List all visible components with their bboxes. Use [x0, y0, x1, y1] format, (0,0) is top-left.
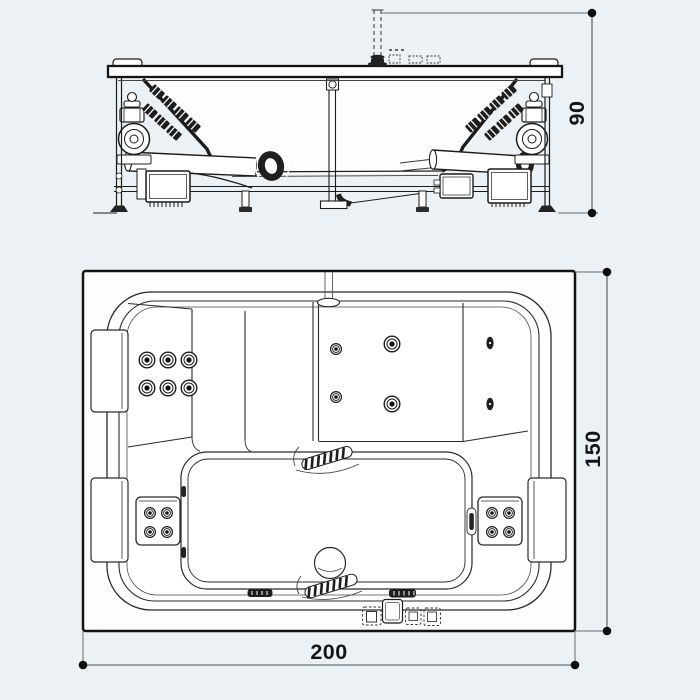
headrest-pad-right [528, 478, 566, 562]
bathtub-technical-drawing: 90 [0, 0, 700, 700]
dimension-dot [79, 661, 88, 670]
faucet-riser-dashed [368, 10, 387, 66]
pump-right [515, 93, 549, 165]
grill-left [248, 589, 273, 597]
jet [487, 527, 498, 538]
front-elevation-view: 90 [93, 9, 598, 218]
dimension-width: 200 [79, 631, 580, 669]
jet [331, 344, 342, 355]
wall-jet-oval [486, 337, 493, 349]
jet [487, 508, 498, 519]
dimension-dot [603, 627, 612, 636]
jet [160, 352, 176, 368]
jet [160, 380, 176, 396]
width-dimension-label: 200 [310, 640, 347, 664]
jet [181, 352, 197, 368]
jet [384, 396, 400, 412]
deck-rim [108, 59, 562, 81]
dimension-dot [571, 661, 580, 670]
jet [384, 336, 400, 352]
headrest-pad-left-bottom [91, 478, 128, 562]
jet-pad-right [478, 497, 522, 545]
jet [181, 380, 197, 396]
plan-view: 150 200 [79, 268, 612, 670]
jet [162, 527, 173, 538]
jet [145, 527, 156, 538]
jet [504, 508, 515, 519]
control-box-right [488, 169, 531, 207]
height-dimension-label: 90 [565, 101, 589, 126]
jet [162, 508, 173, 519]
deck-fittings-dashed [389, 50, 440, 63]
dimension-dot [588, 9, 597, 18]
grill-right [389, 589, 416, 598]
dimension-depth: 150 [575, 268, 611, 636]
jet [139, 352, 155, 368]
jet [331, 392, 342, 403]
jet-pad-left [136, 497, 180, 545]
jet [504, 527, 515, 538]
dimension-dot [603, 268, 612, 277]
technical-drawing-page: 90 [0, 0, 700, 700]
headrest-pad-left-top [91, 330, 128, 412]
junction-box-right [434, 174, 473, 198]
jet [145, 508, 156, 519]
jet [139, 380, 155, 396]
depth-dimension-label: 150 [581, 430, 605, 467]
wall-jet-oval [486, 398, 493, 410]
dimension-dot [588, 209, 597, 218]
drain [315, 548, 346, 579]
